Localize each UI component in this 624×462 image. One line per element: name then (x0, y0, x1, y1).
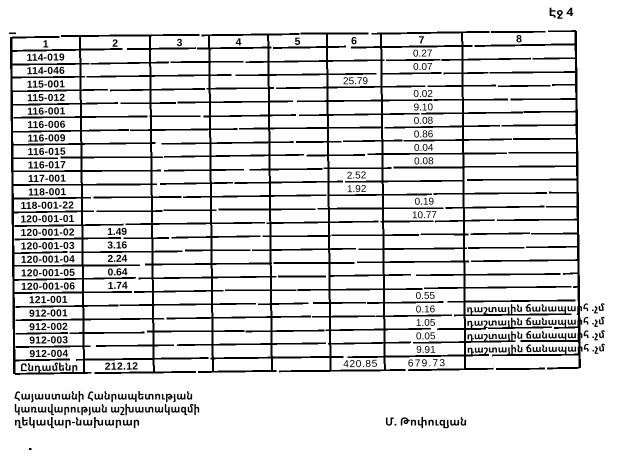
svg-text:7: 7 (419, 34, 425, 46)
svg-text:114-046: 114-046 (27, 66, 65, 77)
svg-text:116-017: 116-017 (28, 160, 66, 171)
svg-text:116-006: 116-006 (27, 120, 65, 131)
svg-text:0.04: 0.04 (414, 143, 434, 154)
svg-text:0.86: 0.86 (414, 129, 434, 140)
svg-text:1.05: 1.05 (416, 318, 436, 329)
svg-text:120-001-01: 120-001-01 (20, 214, 74, 226)
svg-text:115-012: 115-012 (27, 93, 65, 104)
svg-text:912-002: 912-002 (29, 322, 68, 333)
svg-text:420.85: 420.85 (343, 359, 378, 370)
svg-text:679.73: 679.73 (408, 358, 446, 369)
svg-text:10.77: 10.77 (412, 210, 438, 221)
svg-text:0.19: 0.19 (415, 197, 435, 208)
svg-text:3.16: 3.16 (107, 240, 127, 251)
svg-text:4: 4 (236, 36, 242, 48)
svg-text:9.10: 9.10 (413, 102, 433, 113)
svg-text:120-001-05: 120-001-05 (21, 268, 75, 280)
svg-text:0.08: 0.08 (414, 116, 434, 127)
svg-text:912-004: 912-004 (29, 349, 68, 360)
svg-text:115-001: 115-001 (27, 79, 65, 90)
svg-text:1: 1 (43, 38, 49, 50)
svg-text:121-001: 121-001 (29, 295, 68, 306)
svg-text:117-001: 117-001 (28, 174, 66, 185)
svg-text:1.92: 1.92 (347, 184, 367, 195)
svg-text:25.79: 25.79 (343, 76, 369, 87)
svg-text:114-019: 114-019 (27, 52, 65, 63)
svg-text:116-009: 116-009 (27, 133, 65, 144)
svg-text:912-003: 912-003 (29, 335, 68, 346)
svg-text:116-015: 116-015 (28, 147, 66, 158)
svg-text:0.07: 0.07 (413, 62, 433, 73)
svg-text:5: 5 (295, 36, 301, 48)
svg-text:118-001: 118-001 (28, 187, 66, 198)
svg-text:0.05: 0.05 (416, 331, 436, 342)
svg-text:2: 2 (112, 38, 118, 50)
svg-text:116-001: 116-001 (27, 106, 65, 117)
svg-text:2.24: 2.24 (107, 254, 127, 265)
svg-text:9.91: 9.91 (416, 345, 436, 356)
svg-text:212.12: 212.12 (105, 361, 139, 372)
svg-text:0.16: 0.16 (416, 304, 436, 315)
svg-text:118-001-22: 118-001-22 (20, 200, 74, 212)
svg-text:120-001-04: 120-001-04 (21, 254, 75, 266)
svg-text:120-001-03: 120-001-03 (21, 241, 75, 253)
svg-text:6: 6 (351, 35, 357, 47)
svg-text:0.08: 0.08 (414, 156, 434, 167)
svg-text:120-001-02: 120-001-02 (21, 227, 75, 239)
svg-text:1.74: 1.74 (108, 281, 128, 292)
svg-text:0.64: 0.64 (108, 267, 128, 278)
svg-text:912-001: 912-001 (29, 308, 68, 319)
svg-text:0.55: 0.55 (416, 291, 436, 302)
svg-text:3: 3 (177, 37, 183, 49)
svg-text:2.52: 2.52 (347, 170, 367, 181)
svg-text:0.27: 0.27 (413, 48, 433, 59)
svg-text:120-001-06: 120-001-06 (21, 281, 75, 293)
svg-text:8: 8 (516, 33, 522, 45)
svg-text:1.49: 1.49 (107, 227, 127, 238)
svg-text:0.02: 0.02 (413, 89, 433, 100)
